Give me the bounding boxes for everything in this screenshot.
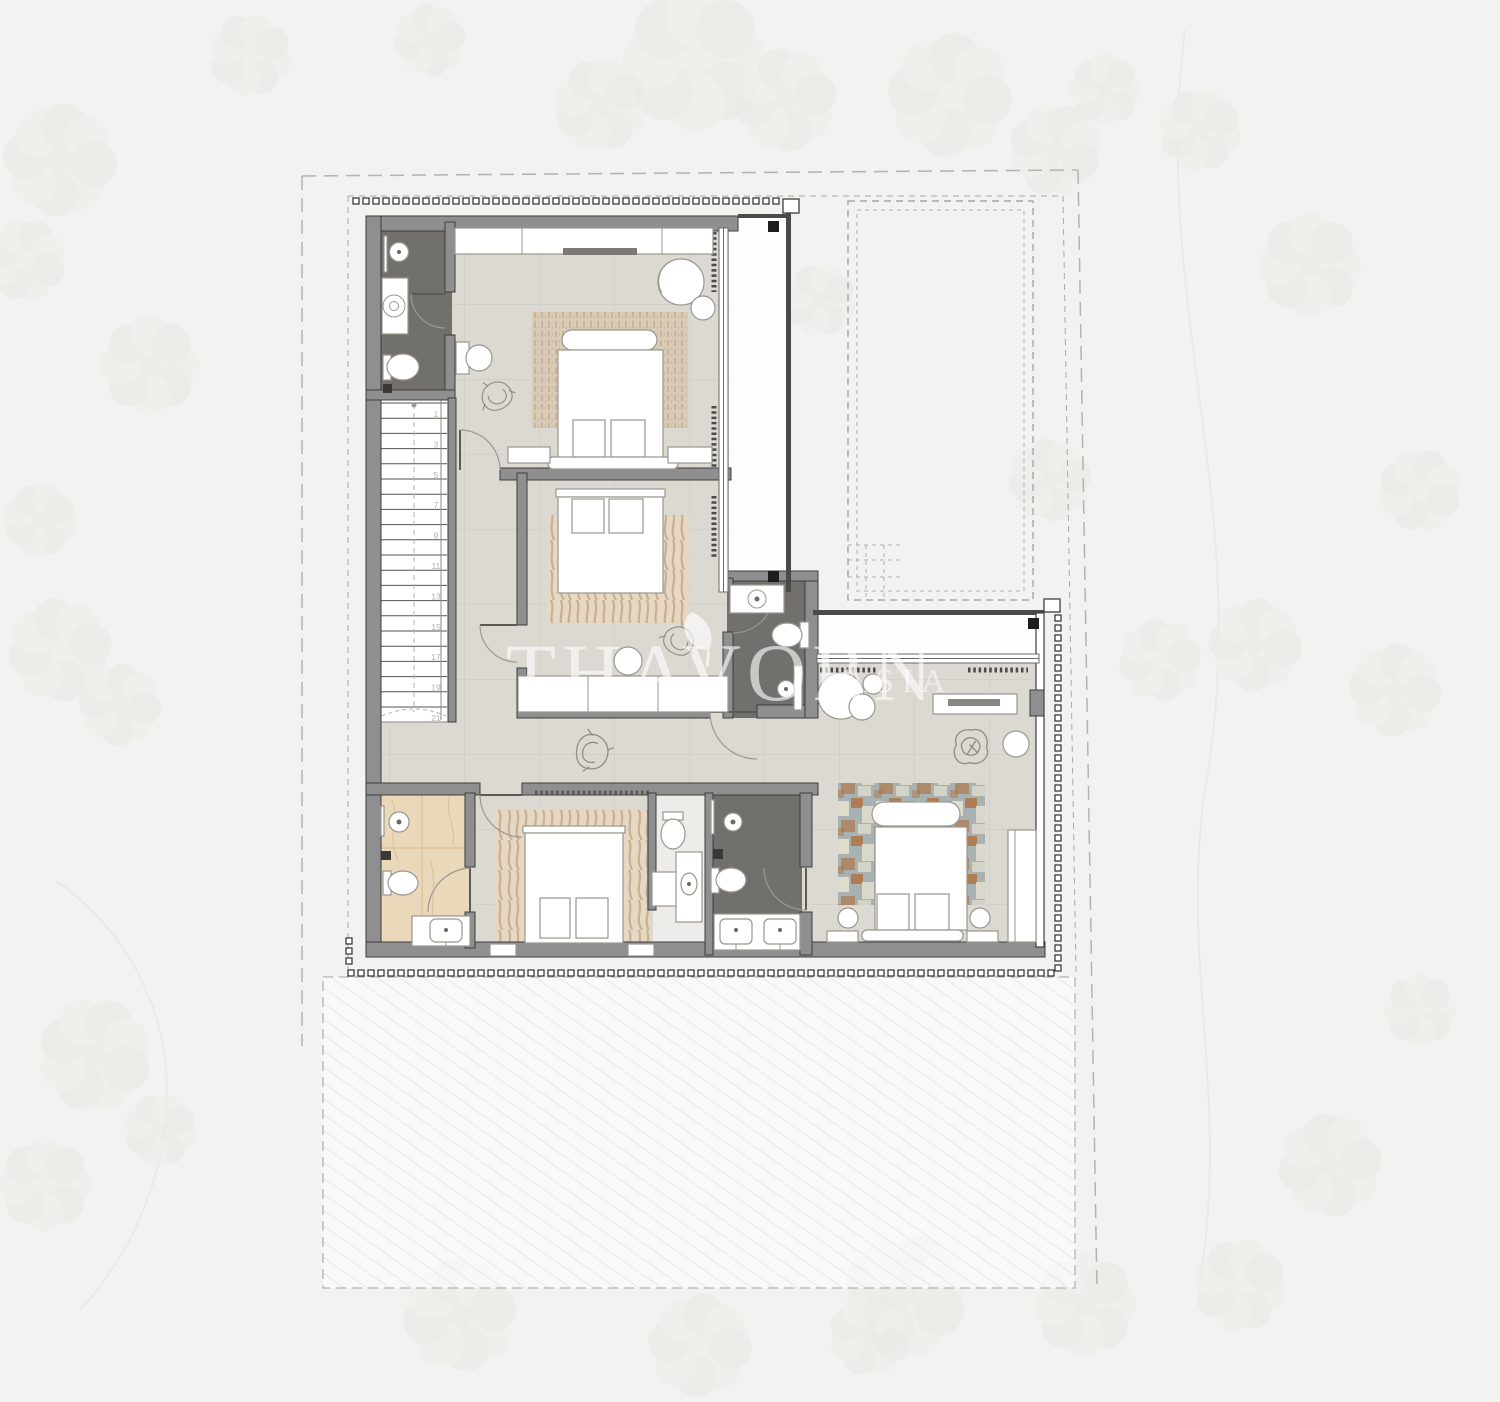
deck-baluster xyxy=(683,198,689,204)
vanity xyxy=(676,852,702,922)
deck-baluster xyxy=(548,970,554,976)
floor-drain xyxy=(713,849,723,859)
deck-baluster xyxy=(763,198,769,204)
deck-baluster xyxy=(673,198,679,204)
deck-baluster xyxy=(678,970,684,976)
deck-baluster xyxy=(563,198,569,204)
deck-baluster xyxy=(1055,945,1061,951)
deck-baluster xyxy=(493,198,499,204)
stair-number: 5 xyxy=(434,470,439,480)
deck-baluster xyxy=(708,970,714,976)
corner-post xyxy=(1044,599,1060,612)
deck-baluster xyxy=(413,198,419,204)
deck-baluster xyxy=(423,198,429,204)
deck-baluster xyxy=(538,970,544,976)
stair-number: 1 xyxy=(434,409,439,419)
deck-baluster xyxy=(818,970,824,976)
deck-baluster xyxy=(346,938,352,944)
deck-baluster xyxy=(1055,895,1061,901)
deck-baluster xyxy=(578,970,584,976)
deck-baluster xyxy=(433,198,439,204)
deck-baluster xyxy=(653,198,659,204)
deck-baluster xyxy=(788,970,794,976)
deck-baluster xyxy=(928,970,934,976)
deck-baluster xyxy=(868,970,874,976)
deck-baluster xyxy=(828,970,834,976)
toilet xyxy=(383,354,419,380)
tree-canopy xyxy=(1348,643,1441,736)
bench xyxy=(827,931,858,942)
pillow xyxy=(611,420,645,457)
deck-baluster xyxy=(503,198,509,204)
floor-plan-sheet: 13579111315171921 xyxy=(0,0,1500,1402)
deck-baluster xyxy=(1055,765,1061,771)
deck-baluster xyxy=(1055,935,1061,941)
balcony-east xyxy=(729,216,786,592)
stair-number: 3 xyxy=(434,439,439,449)
ottoman xyxy=(691,296,715,320)
deck-baluster xyxy=(808,970,814,976)
deck-baluster xyxy=(1048,970,1054,976)
deck-baluster xyxy=(918,970,924,976)
side-table xyxy=(508,447,550,463)
deck-baluster xyxy=(838,970,844,976)
deck-baluster xyxy=(588,970,594,976)
deck-baluster xyxy=(663,198,669,204)
stair-number: 13 xyxy=(431,591,441,601)
deck-baluster xyxy=(768,970,774,976)
deck-baluster xyxy=(488,970,494,976)
deck-baluster xyxy=(1055,625,1061,631)
deck-baluster xyxy=(628,970,634,976)
deck-baluster xyxy=(748,970,754,976)
deck-baluster xyxy=(533,198,539,204)
deck-baluster xyxy=(968,970,974,976)
stair-number: 7 xyxy=(434,500,439,510)
deck-baluster xyxy=(773,198,779,204)
deck-baluster xyxy=(1055,705,1061,711)
deck-baluster xyxy=(1055,655,1061,661)
step xyxy=(490,944,516,956)
deck-baluster xyxy=(363,198,369,204)
double-vanity xyxy=(714,914,800,951)
toilet xyxy=(711,868,746,893)
closet xyxy=(455,228,713,255)
tree-canopy xyxy=(1384,974,1457,1047)
side-table xyxy=(1003,731,1029,757)
deck-baluster xyxy=(418,970,424,976)
deck-baluster xyxy=(988,970,994,976)
deck-baluster xyxy=(753,198,759,204)
bed xyxy=(862,802,967,941)
deck-baluster xyxy=(368,970,374,976)
deck-baluster xyxy=(498,970,504,976)
deck-baluster xyxy=(1055,785,1061,791)
deck-baluster xyxy=(1055,925,1061,931)
deck-baluster xyxy=(718,970,724,976)
deck-baluster xyxy=(778,970,784,976)
balcony-edge xyxy=(813,610,1044,615)
deck-baluster xyxy=(528,970,534,976)
deck-baluster xyxy=(743,198,749,204)
wall-pier xyxy=(1030,690,1044,716)
deck-baluster xyxy=(858,970,864,976)
pillow xyxy=(540,898,570,938)
deck-baluster xyxy=(958,970,964,976)
deck-baluster xyxy=(658,970,664,976)
tree-canopy xyxy=(1258,213,1362,317)
deck-baluster xyxy=(518,970,524,976)
deck-baluster xyxy=(593,198,599,204)
deck-baluster xyxy=(1055,685,1061,691)
deck-baluster xyxy=(1055,845,1061,851)
deck-baluster xyxy=(693,198,699,204)
deck-baluster xyxy=(1055,695,1061,701)
pouf xyxy=(838,908,858,928)
deck-baluster xyxy=(463,198,469,204)
deck-baluster xyxy=(1055,825,1061,831)
bed xyxy=(556,489,665,593)
deck-baluster xyxy=(568,970,574,976)
deck-baluster xyxy=(618,970,624,976)
tree-canopy xyxy=(888,33,1012,157)
deck-baluster xyxy=(938,970,944,976)
deck-baluster xyxy=(1055,645,1061,651)
bed xyxy=(523,826,625,943)
toilet xyxy=(383,871,418,895)
deck-baluster xyxy=(453,198,459,204)
stair-number: 11 xyxy=(432,561,441,571)
deck-baluster xyxy=(558,970,564,976)
stair-number: 21 xyxy=(431,713,441,723)
deck-baluster xyxy=(468,970,474,976)
shower-bar xyxy=(381,806,384,836)
deck-baluster xyxy=(703,198,709,204)
pillow xyxy=(915,894,949,930)
deck-baluster xyxy=(448,970,454,976)
mirror xyxy=(384,236,387,272)
deck-baluster xyxy=(688,970,694,976)
deck-baluster xyxy=(613,198,619,204)
deck-baluster xyxy=(348,970,354,976)
deck-baluster xyxy=(1055,875,1061,881)
stair-number: 17 xyxy=(431,652,441,662)
deck-baluster xyxy=(848,970,854,976)
deck-baluster xyxy=(948,970,954,976)
foot-bench xyxy=(548,457,678,469)
deck-baluster xyxy=(443,198,449,204)
deck-baluster xyxy=(643,198,649,204)
deck-baluster xyxy=(998,970,1004,976)
shower-tray xyxy=(382,278,408,334)
deck-baluster xyxy=(648,970,654,976)
deck-baluster xyxy=(1055,635,1061,641)
deck-baluster xyxy=(603,198,609,204)
deck-baluster xyxy=(1055,865,1061,871)
deck-baluster xyxy=(1055,955,1061,961)
deck-baluster xyxy=(1055,715,1061,721)
deck-baluster xyxy=(408,970,414,976)
deck-baluster xyxy=(723,198,729,204)
headboard-bolster xyxy=(562,330,657,350)
deck-baluster xyxy=(1055,745,1061,751)
deck-baluster xyxy=(1055,905,1061,911)
tree-canopy xyxy=(1069,54,1142,127)
deck-baluster xyxy=(598,970,604,976)
deck-baluster xyxy=(1055,755,1061,761)
toilet xyxy=(661,812,685,849)
shower-bar xyxy=(711,800,714,834)
vanity xyxy=(412,916,470,948)
deck-baluster xyxy=(758,970,764,976)
deck-baluster xyxy=(1055,795,1061,801)
deck-baluster xyxy=(458,970,464,976)
deck-baluster xyxy=(428,970,434,976)
deck-baluster xyxy=(383,198,389,204)
deck-baluster xyxy=(473,198,479,204)
deck-baluster xyxy=(573,198,579,204)
deck-baluster xyxy=(353,198,359,204)
headboard xyxy=(556,489,665,497)
column xyxy=(768,221,779,232)
deck-baluster xyxy=(1055,835,1061,841)
deck-baluster xyxy=(1055,725,1061,731)
watermark-region: ASIA xyxy=(842,663,953,700)
deck-baluster xyxy=(373,198,379,204)
pouf xyxy=(970,908,990,928)
tree-canopy xyxy=(648,1293,752,1397)
deck-baluster xyxy=(1055,735,1061,741)
pillow xyxy=(877,894,909,930)
pillow xyxy=(572,499,604,533)
deck-baluster xyxy=(1055,775,1061,781)
deck-baluster xyxy=(478,970,484,976)
deck-baluster xyxy=(733,198,739,204)
deck-baluster xyxy=(513,198,519,204)
deck-baluster xyxy=(1055,805,1061,811)
stair-number: 15 xyxy=(431,622,441,632)
headboard xyxy=(523,826,625,833)
foot-bench xyxy=(862,930,963,941)
deck-baluster xyxy=(798,970,804,976)
terrace xyxy=(323,977,1075,1288)
deck-baluster xyxy=(583,198,589,204)
deck-baluster xyxy=(728,970,734,976)
pillow xyxy=(573,420,605,457)
headboard-bolster xyxy=(872,802,960,826)
column xyxy=(768,571,779,582)
step xyxy=(628,944,654,956)
deck-baluster xyxy=(403,198,409,204)
deck-baluster xyxy=(483,198,489,204)
balcony-rail-east xyxy=(786,212,791,592)
deck-baluster xyxy=(543,198,549,204)
floor-drain xyxy=(383,384,392,393)
side-table xyxy=(668,447,712,463)
wall-west xyxy=(366,216,381,957)
stair-number: 9 xyxy=(434,531,439,541)
deck-baluster xyxy=(623,198,629,204)
stool xyxy=(466,345,492,371)
deck-baluster xyxy=(1055,855,1061,861)
deck-baluster xyxy=(1038,970,1044,976)
deck-baluster xyxy=(898,970,904,976)
bench xyxy=(967,931,998,942)
deck-baluster xyxy=(978,970,984,976)
deck-baluster xyxy=(713,198,719,204)
deck-baluster xyxy=(888,970,894,976)
deck-baluster xyxy=(878,970,884,976)
tree-canopy xyxy=(0,1138,92,1232)
deck-baluster xyxy=(738,970,744,976)
deck-baluster xyxy=(553,198,559,204)
bed xyxy=(548,330,678,469)
deck-baluster xyxy=(346,948,352,954)
deck-baluster xyxy=(1055,675,1061,681)
deck-baluster xyxy=(633,198,639,204)
deck-baluster xyxy=(378,970,384,976)
corner-post xyxy=(783,199,799,213)
deck-baluster xyxy=(638,970,644,976)
deck-baluster xyxy=(508,970,514,976)
deck-baluster xyxy=(608,970,614,976)
tree-canopy xyxy=(3,103,117,217)
tree-canopy xyxy=(100,315,200,415)
deck-baluster xyxy=(908,970,914,976)
tree-canopy xyxy=(79,664,162,747)
deck-baluster xyxy=(388,970,394,976)
wardrobe xyxy=(1008,830,1036,942)
deck-baluster xyxy=(1055,965,1061,971)
deck-baluster xyxy=(1008,970,1014,976)
deck-baluster xyxy=(438,970,444,976)
deck-baluster xyxy=(346,958,352,964)
tv xyxy=(563,248,637,255)
pillow xyxy=(576,898,608,938)
tv xyxy=(948,699,1000,706)
deck-baluster xyxy=(1028,970,1034,976)
column xyxy=(1028,618,1039,629)
deck-baluster xyxy=(668,970,674,976)
pillow xyxy=(609,499,643,533)
floor-drain xyxy=(381,851,391,860)
deck-baluster xyxy=(1055,615,1061,621)
tree-canopy xyxy=(1208,598,1301,691)
deck-baluster xyxy=(393,198,399,204)
deck-baluster xyxy=(1055,915,1061,921)
floor-plan-svg: 13579111315171921 xyxy=(0,0,1500,1402)
nightstand xyxy=(652,872,677,906)
staircase: 13579111315171921 xyxy=(380,398,448,723)
deck-baluster xyxy=(398,970,404,976)
deck-baluster xyxy=(1055,815,1061,821)
deck-baluster xyxy=(1055,665,1061,671)
deck-baluster xyxy=(1055,885,1061,891)
deck-baluster xyxy=(698,970,704,976)
deck-baluster xyxy=(1018,970,1024,976)
deck-baluster xyxy=(358,970,364,976)
deck-baluster xyxy=(523,198,529,204)
stair-number: 19 xyxy=(431,683,441,693)
